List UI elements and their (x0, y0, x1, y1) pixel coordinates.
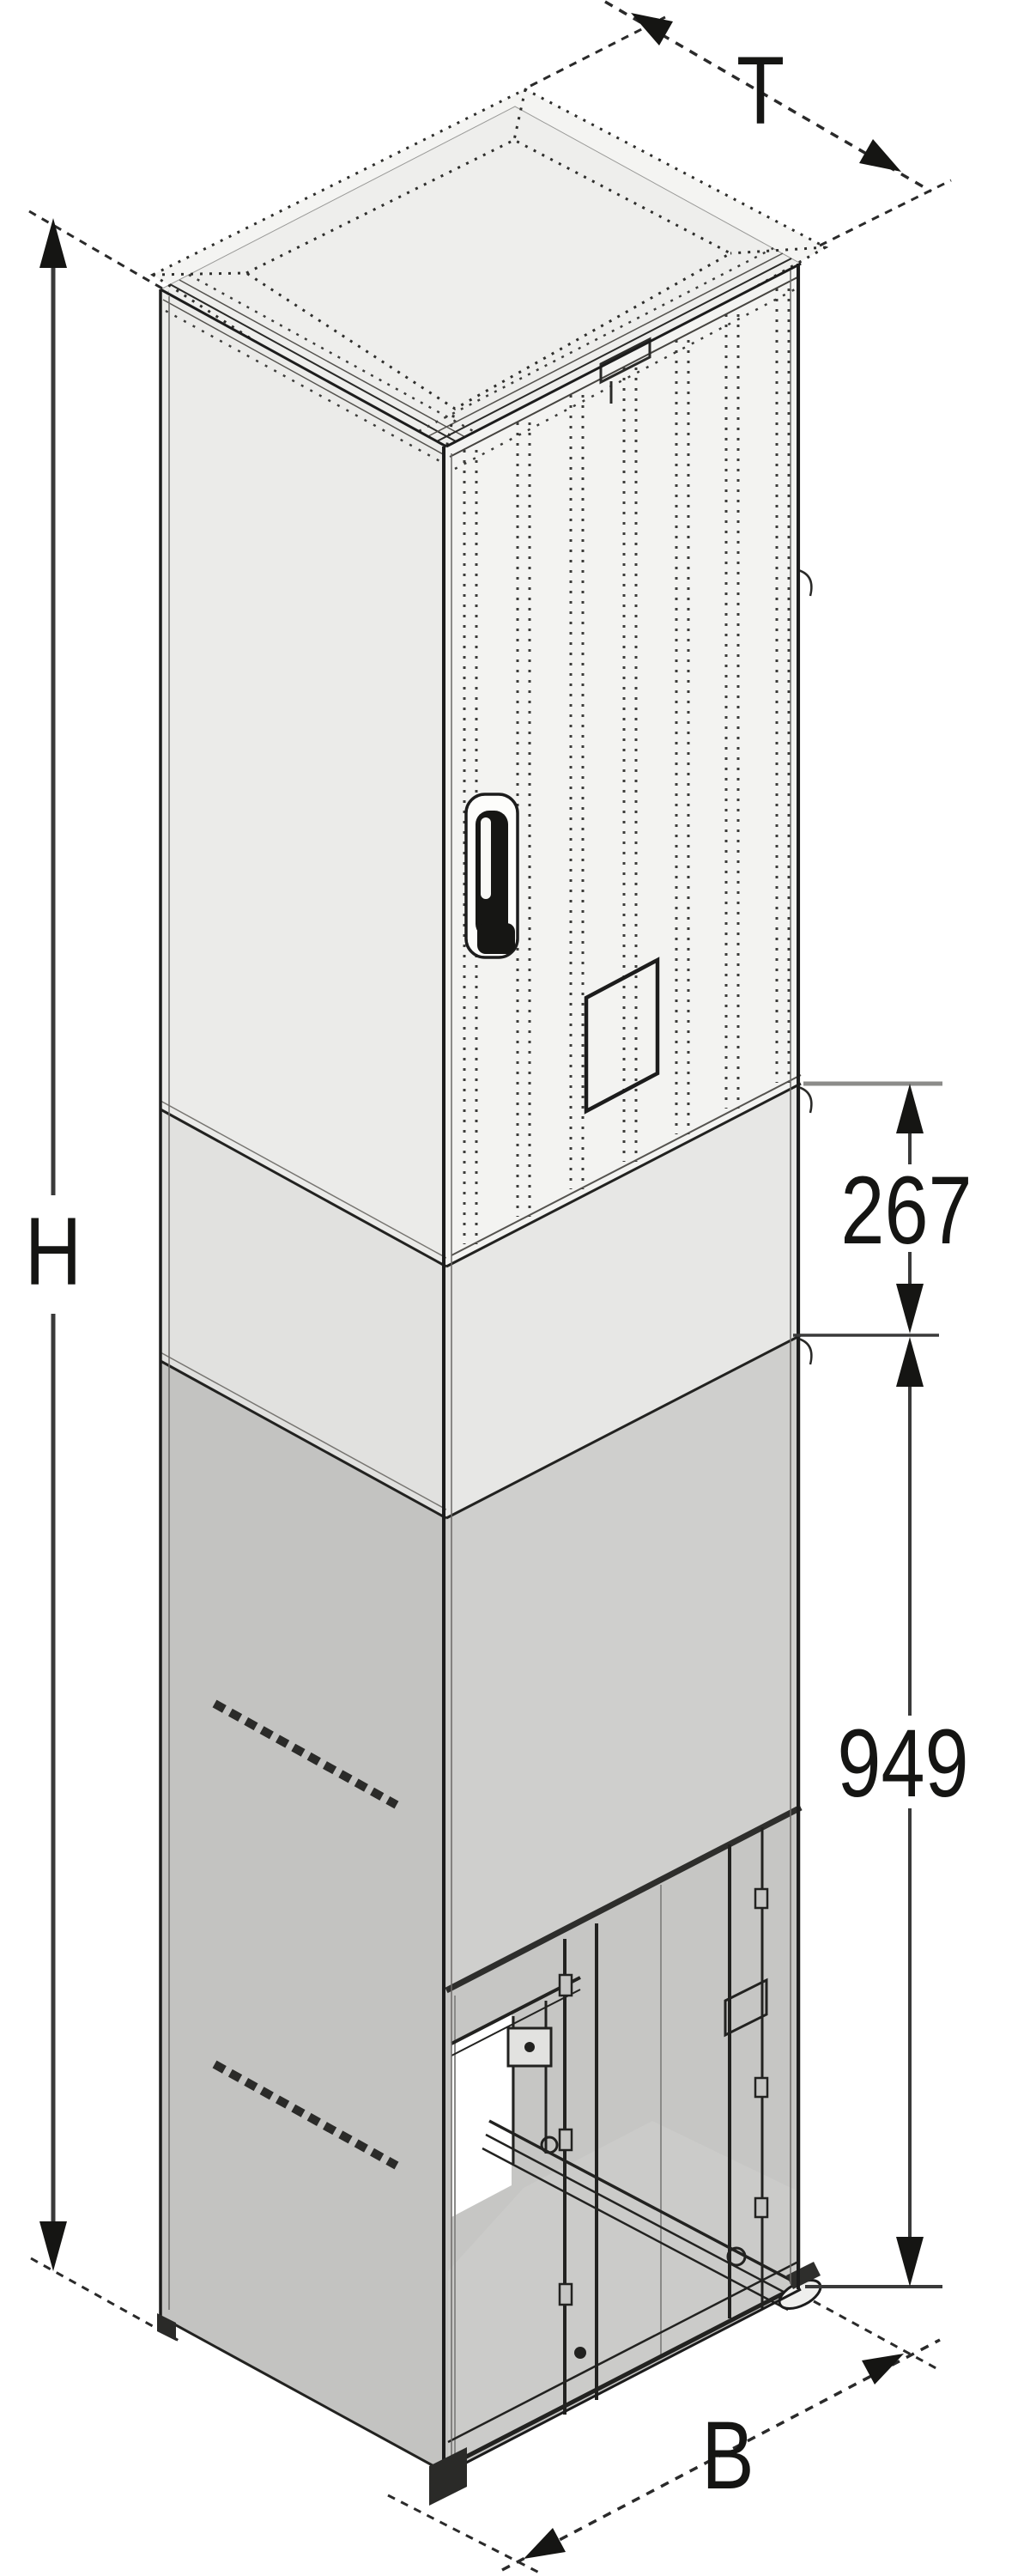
enclosure-isometric-drawing: H T 267 949 (0, 0, 1030, 2576)
technical-drawing-canvas: H T 267 949 (0, 0, 1030, 2576)
arrowhead-up-icon (39, 218, 67, 268)
side-panels (161, 289, 446, 2473)
arrowhead-up-icon (896, 1337, 924, 1387)
arrowhead-downright-icon (859, 139, 901, 172)
arrowhead-upright-icon (862, 2354, 904, 2385)
handle-lever-highlight (481, 817, 491, 899)
dimension-label-plinth-lower: 949 (837, 1709, 968, 1817)
side-panel-lower (161, 1361, 446, 2473)
arrowhead-up-icon (896, 1084, 924, 1133)
dimension-label-depth: T (736, 36, 785, 144)
arrowhead-upleft-icon (631, 13, 673, 46)
side-panel-upper (161, 289, 446, 1267)
base-see-through-gap (451, 2013, 512, 2217)
arrowhead-down-icon (39, 2221, 67, 2271)
handle-lever (476, 811, 508, 938)
arrowhead-down-icon (896, 2237, 924, 2287)
dimension-label-height: H (25, 1197, 82, 1305)
handle-lever-grip (477, 923, 515, 954)
door-handle-icon (466, 794, 518, 957)
arrowhead-downleft-icon (524, 2528, 566, 2559)
dimension-plinths: 267 949 (793, 1084, 972, 2287)
dimension-label-plinth-upper: 267 (840, 1156, 972, 1264)
arrowhead-down-icon (896, 1284, 924, 1334)
dimension-height: H (25, 211, 182, 2342)
dimension-label-width: B (701, 2401, 754, 2509)
bolt (524, 2042, 535, 2052)
